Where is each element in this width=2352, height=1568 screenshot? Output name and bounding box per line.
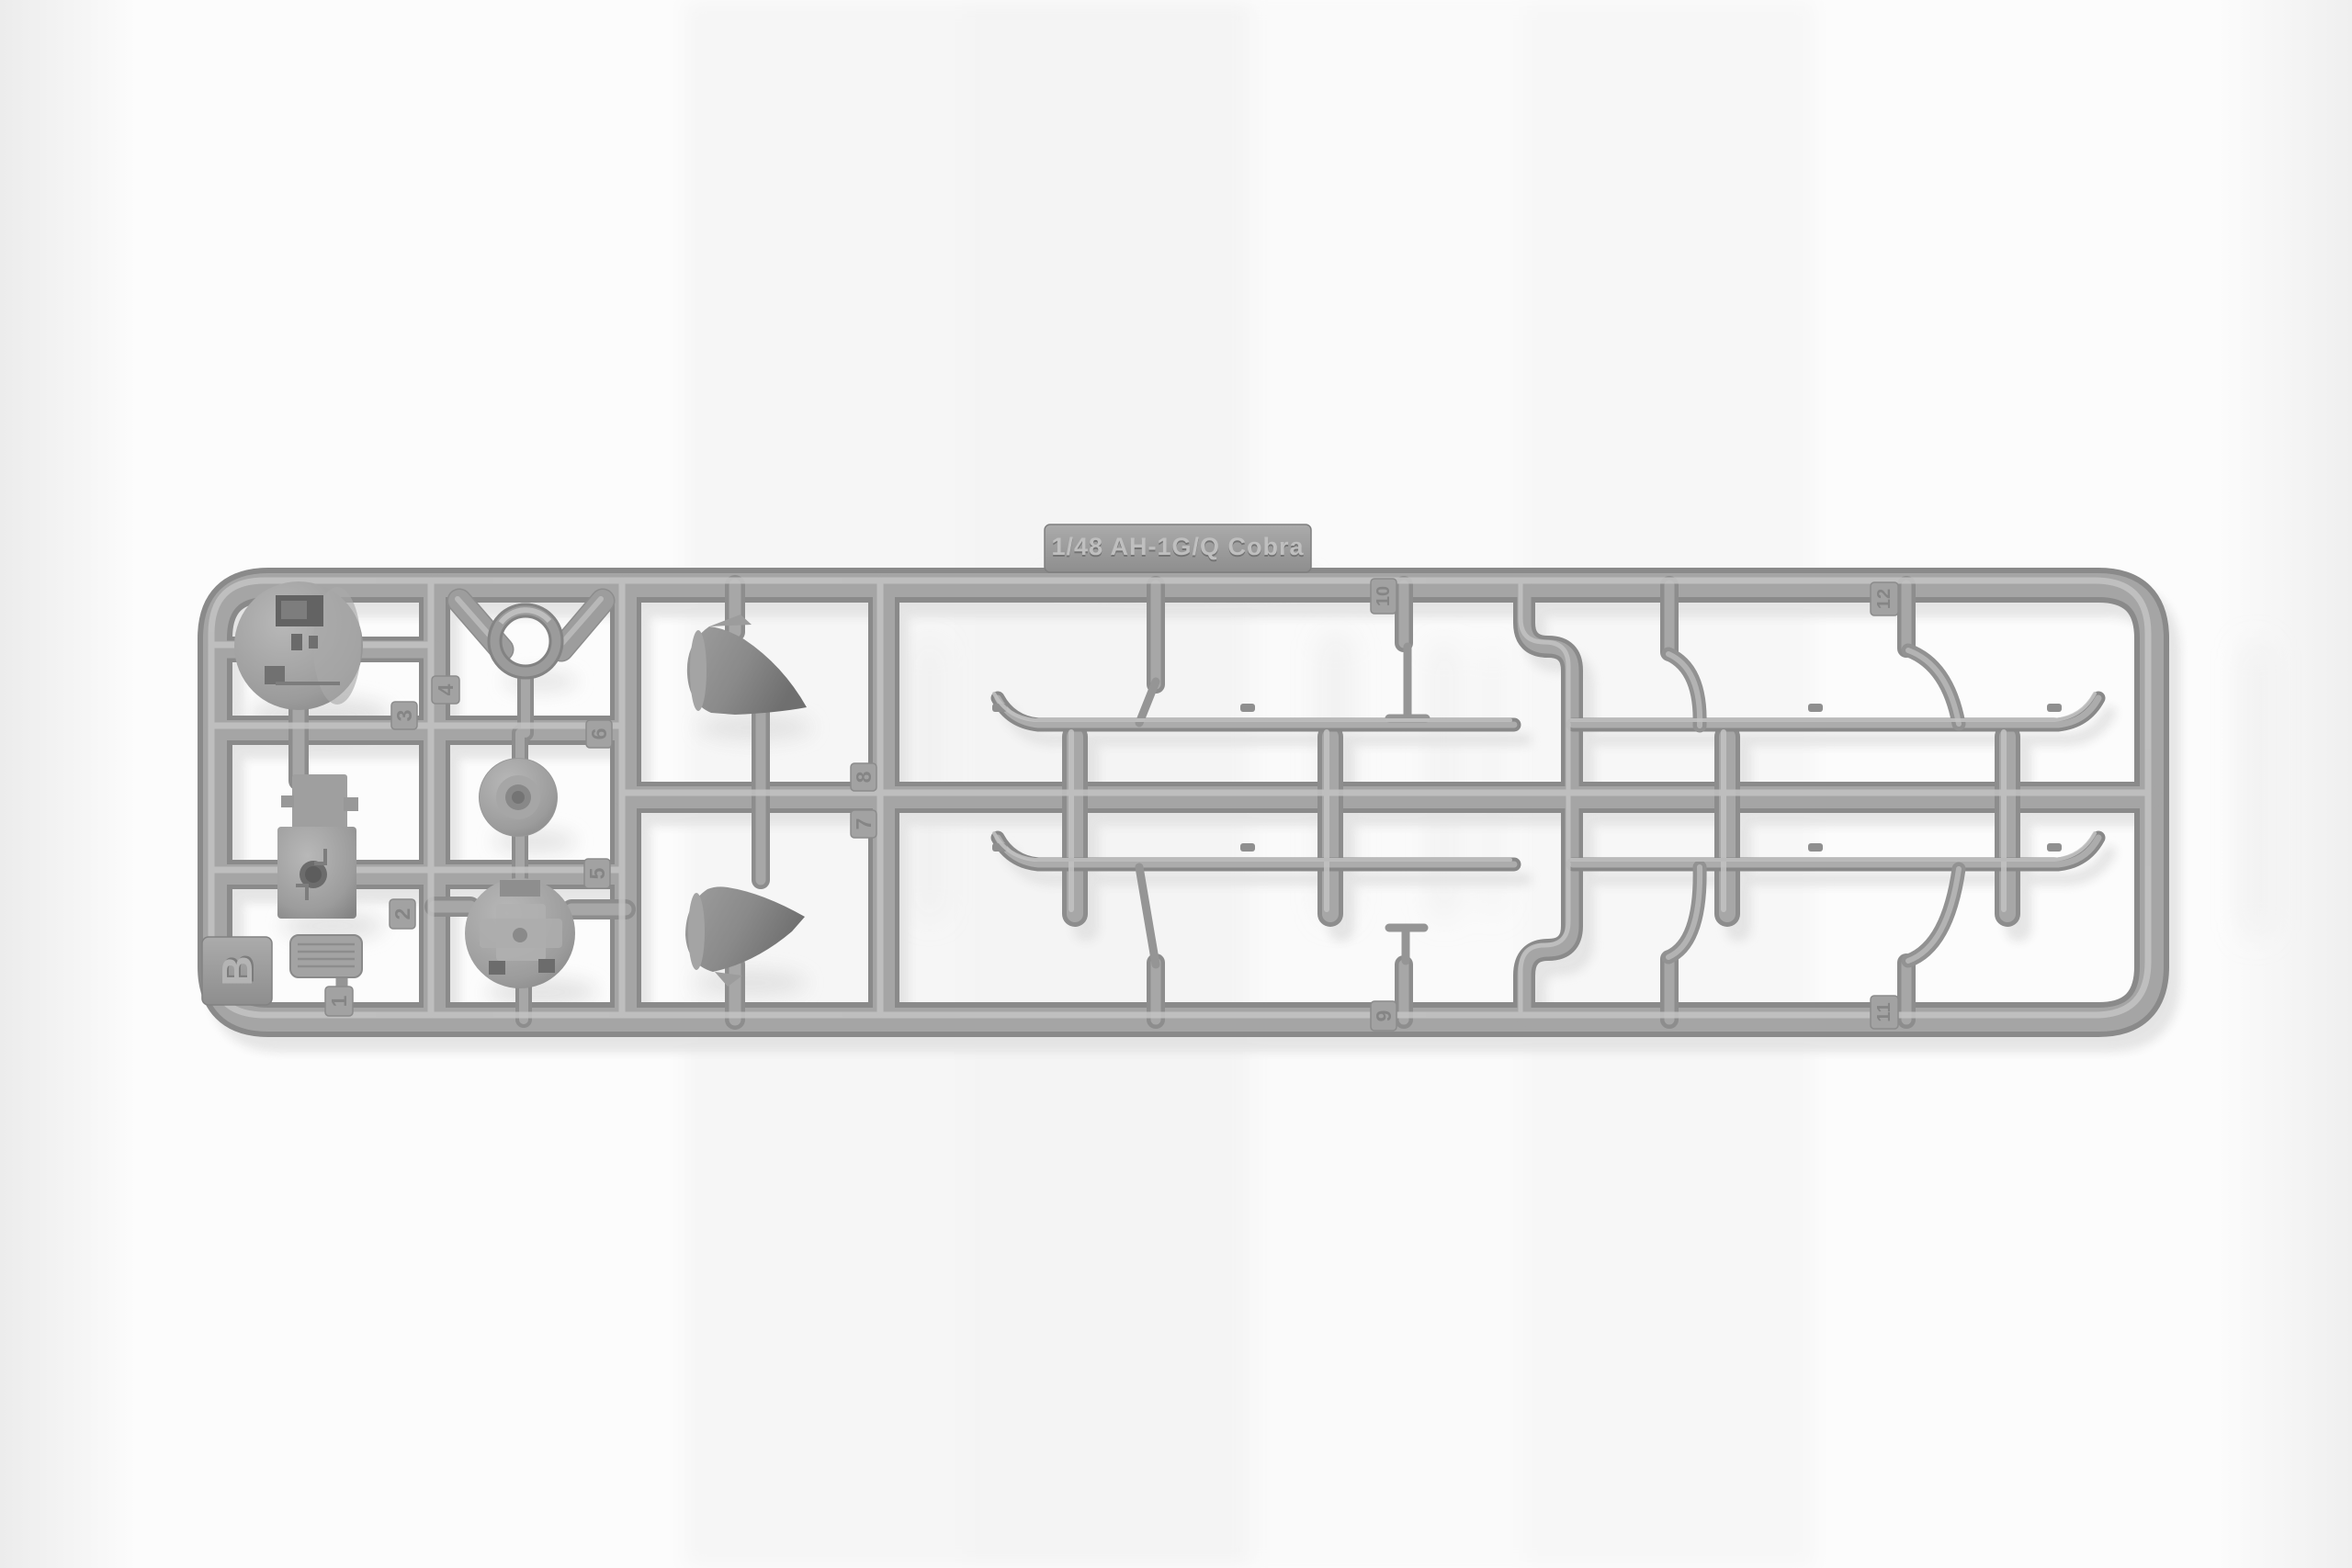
- part-number-tag-9: 9: [1371, 1001, 1396, 1031]
- background-vignette-right: [2214, 0, 2352, 1568]
- part-number-tag-7: 7: [851, 810, 876, 838]
- part-number-tag-1: 1: [325, 987, 353, 1016]
- part-number-tag-4: 4: [432, 676, 459, 704]
- part-number-tag-2: 2: [390, 899, 415, 929]
- nameplate-text: 1/48 AH-1G/Q Cobra: [1051, 533, 1304, 560]
- part-turret-half-upper: [234, 581, 363, 710]
- runner-letter: B: [213, 955, 261, 986]
- part-number-tag-6: 6: [586, 720, 612, 748]
- runner-letter-tab: B B: [202, 937, 272, 1005]
- part-turret-half-lower: [465, 878, 575, 988]
- svg-text:9: 9: [1372, 1010, 1396, 1022]
- background-vignette-left: [0, 0, 138, 1568]
- svg-text:3: 3: [392, 710, 416, 722]
- nameplate: 1/48 AH-1G/Q Cobra 1/48 AH-1G/Q Cobra: [1045, 525, 1311, 572]
- sprue-photo: 1/48 AH-1G/Q Cobra 1/48 AH-1G/Q Cobra B …: [0, 0, 2352, 1568]
- part-gun-breech: [277, 774, 358, 919]
- svg-text:7: 7: [852, 818, 876, 830]
- part-number-tag-5: 5: [584, 859, 610, 888]
- svg-text:11: 11: [1874, 1002, 1894, 1021]
- svg-text:6: 6: [587, 728, 611, 740]
- svg-text:2: 2: [390, 908, 414, 920]
- svg-text:8: 8: [852, 771, 876, 783]
- svg-text:5: 5: [585, 867, 609, 879]
- part-number-tag-11: 11: [1871, 996, 1898, 1029]
- svg-text:1: 1: [327, 995, 351, 1007]
- part-drum: [479, 758, 558, 837]
- svg-text:4: 4: [434, 683, 458, 695]
- svg-text:12: 12: [1874, 589, 1894, 609]
- part-number-tag-10: 10: [1371, 579, 1396, 614]
- part-number-tag-3: 3: [391, 702, 417, 729]
- part-number-tag-8: 8: [851, 763, 876, 791]
- svg-text:10: 10: [1374, 586, 1394, 606]
- part-number-tag-12: 12: [1871, 582, 1898, 615]
- part-instrument-panel: [290, 935, 362, 977]
- photo-canvas: 1/48 AH-1G/Q Cobra 1/48 AH-1G/Q Cobra B …: [0, 0, 2352, 1568]
